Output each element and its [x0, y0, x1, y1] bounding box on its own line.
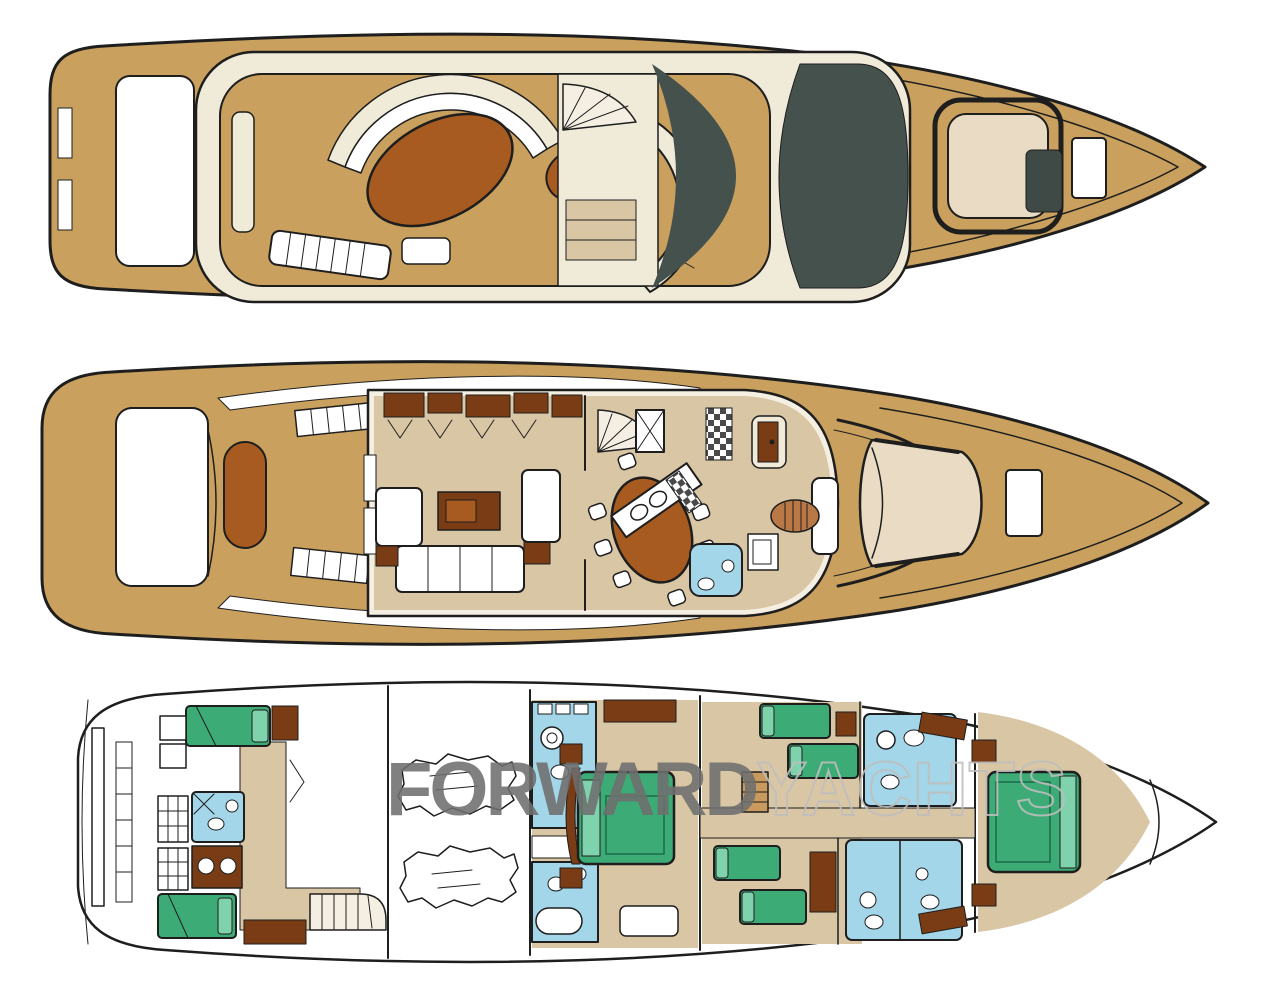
engine-starboard: [400, 846, 518, 908]
main-deck-plan: [42, 362, 1208, 645]
lower-corridor: [700, 808, 975, 838]
master-cabin: [532, 700, 698, 948]
helm-seat: [771, 500, 819, 532]
foredeck-sunpad: [860, 440, 982, 566]
flybridge-side-bench: [232, 112, 254, 232]
pilothouse-door: [752, 416, 786, 468]
crew-stairs: [310, 894, 386, 930]
aft-bench: [116, 408, 208, 586]
engine-port: [398, 754, 516, 816]
yacht-deck-plans: FORWARDYACHTS: [0, 0, 1283, 992]
foredeck-hatch: [1006, 470, 1042, 536]
helm-console: [1026, 150, 1062, 212]
lower-deck-plan: [78, 682, 1216, 962]
flybridge-deck-plan: [50, 34, 1205, 302]
master-bench: [620, 906, 678, 936]
day-head: [690, 544, 742, 596]
flybridge-sunpad-small: [402, 238, 450, 264]
saloon-coffee-table: [438, 492, 500, 530]
crew-laundry: [192, 846, 242, 888]
aft-table: [224, 442, 266, 548]
hardtop-sunroof: [779, 64, 908, 288]
deck-plan-drawing: [0, 0, 1283, 992]
bow-seating: [935, 100, 1062, 232]
guest-area: [700, 702, 975, 944]
bow-hatch: [1072, 138, 1106, 198]
galley-sink-cabinet: [748, 534, 778, 570]
crew-head: [192, 792, 244, 842]
flybridge-stairwell: [558, 74, 658, 286]
galley-floor-tiles: [706, 408, 732, 460]
companionway-stairs: [742, 772, 768, 812]
